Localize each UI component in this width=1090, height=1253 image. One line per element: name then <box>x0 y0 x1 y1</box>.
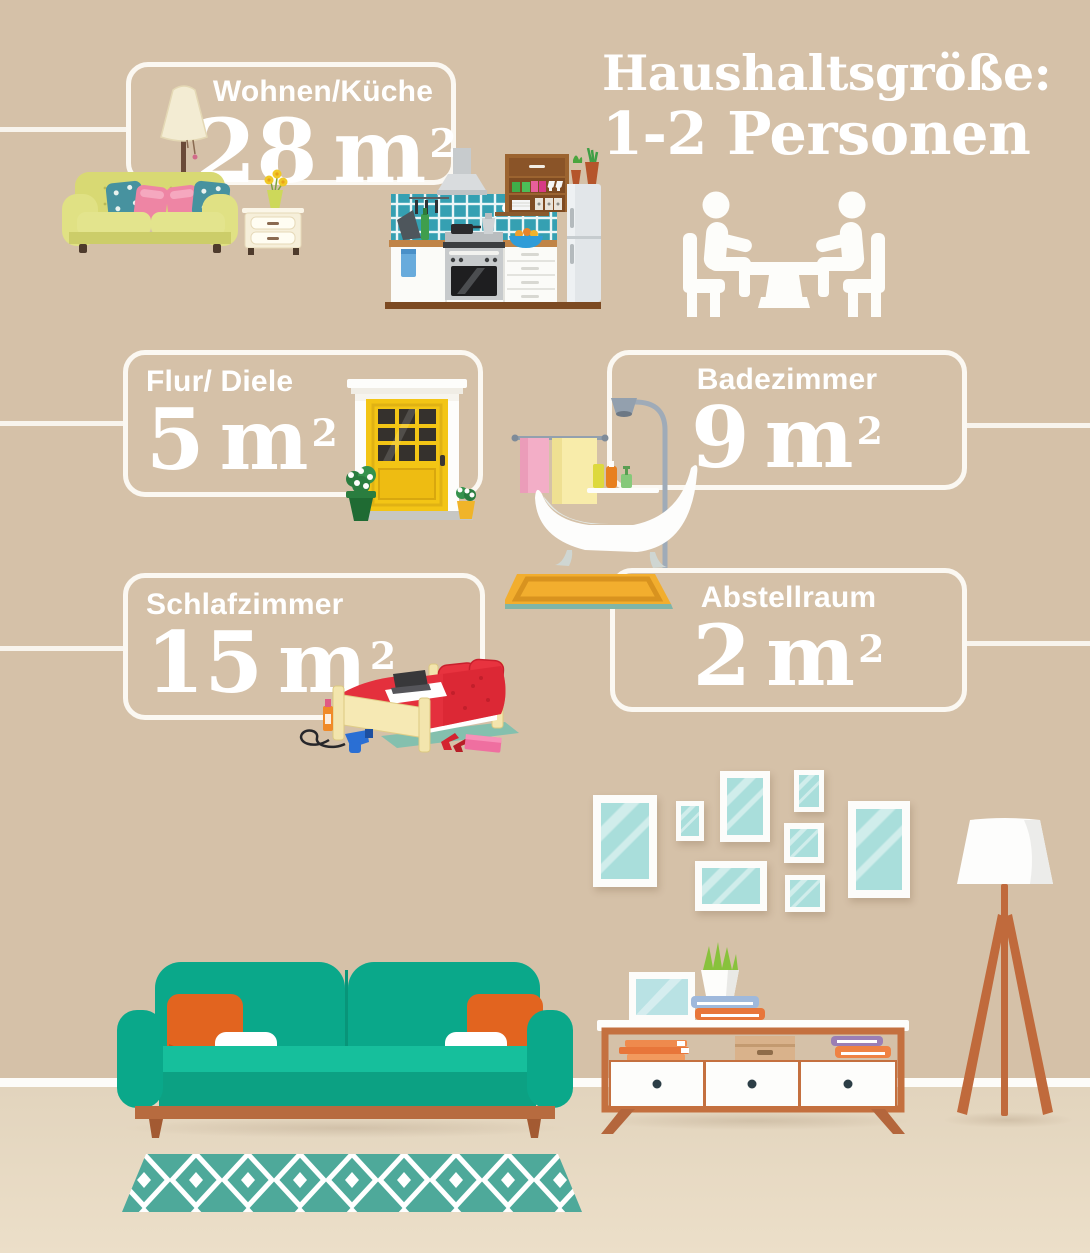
area-value: 5 <box>146 390 204 489</box>
sideboard-leg <box>601 1109 635 1134</box>
frame-glass <box>702 868 760 904</box>
title-line2: 1-2 Personen <box>602 103 1072 165</box>
photo-frame-icon <box>629 972 695 1022</box>
frame-glass <box>856 809 902 890</box>
lamp-tripod <box>957 884 1053 1116</box>
kitchen-base <box>385 302 601 309</box>
teal-couch-illustration <box>115 958 575 1138</box>
frame-glass <box>681 806 699 836</box>
door-step <box>361 511 473 520</box>
rug-pattern <box>118 1152 583 1214</box>
picture-frame <box>784 823 824 863</box>
bath-mat-icon <box>505 574 673 609</box>
area-unit: m <box>765 388 854 487</box>
page-title: Haushaltsgröße: 1-2 Personen <box>602 48 1072 165</box>
connector-line-bad <box>965 423 1090 428</box>
sofa-icon <box>62 172 238 253</box>
frame-glass <box>790 829 818 857</box>
connector-line-flur <box>0 421 125 426</box>
area-exponent: 2 <box>857 409 883 453</box>
storage-box-icon <box>735 1036 795 1062</box>
living-room-set-illustration <box>55 82 305 257</box>
area-exponent: 2 <box>858 627 884 671</box>
picture-frame <box>785 875 825 912</box>
diamond-rug-illustration <box>118 1152 583 1214</box>
area-unit: m <box>766 606 855 705</box>
shelf-books-left <box>619 1040 689 1061</box>
bathroom-illustration <box>505 378 715 613</box>
frame-glass <box>601 803 649 879</box>
table-top <box>741 262 827 275</box>
connector-line-schlaf <box>0 646 125 651</box>
fridge-icon <box>567 148 601 302</box>
room-area: 2m2 <box>615 616 962 696</box>
picture-frame <box>848 801 910 898</box>
connector-line-abstell <box>965 641 1090 646</box>
sideboard-leg <box>871 1109 905 1134</box>
yellow-door <box>366 399 448 511</box>
sideboard-illustration <box>585 942 920 1134</box>
kitchen-illustration <box>383 148 603 314</box>
bedroom-illustration <box>293 638 523 756</box>
gallery-wall <box>590 763 920 913</box>
area-value: 2 <box>693 606 751 705</box>
bath-shelf-icon <box>587 461 659 493</box>
picture-frame <box>593 795 657 887</box>
tripod-floor-lamp-illustration <box>940 818 1070 1123</box>
infographic-canvas: Wohnen/Küche 28m2 Flur/ Diele 5m2 Badezi… <box>0 0 1090 1253</box>
picture-frame <box>720 771 770 842</box>
drawers <box>609 1060 897 1108</box>
two-people-at-table-icon <box>683 191 885 318</box>
picture-frame <box>676 801 704 841</box>
area-unit: m <box>220 390 309 489</box>
frame-glass <box>790 880 820 907</box>
couch-icon <box>117 962 573 1138</box>
shelf-books-right <box>831 1036 891 1058</box>
title-line1: Haushaltsgröße: <box>602 48 1072 99</box>
person-silhouette <box>683 192 753 318</box>
range-hood-icon <box>437 148 487 195</box>
front-door-illustration <box>337 373 477 525</box>
stacked-books <box>691 996 765 1020</box>
upper-cabinet <box>505 154 569 212</box>
picture-frame <box>794 770 824 812</box>
picture-frame <box>695 861 767 911</box>
frame-glass <box>799 775 819 807</box>
potted-grass-icon <box>701 942 739 996</box>
frame-glass <box>727 778 763 835</box>
nightstand-icon <box>242 170 304 256</box>
area-exponent: 2 <box>311 411 337 455</box>
lamp-shade <box>957 818 1053 884</box>
area-value: 15 <box>146 613 263 712</box>
